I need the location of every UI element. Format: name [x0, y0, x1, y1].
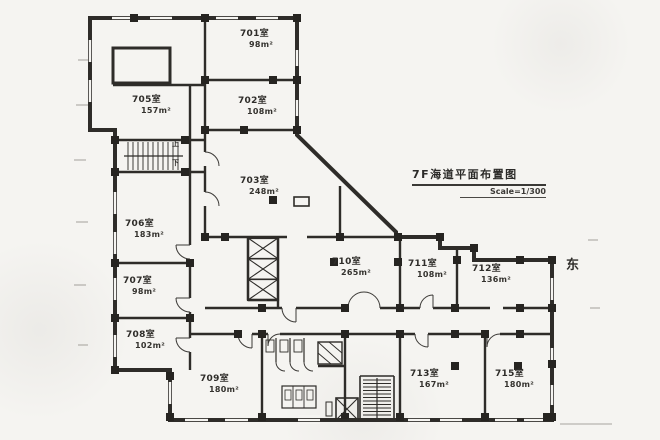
room-label-702: 702室108m²	[238, 96, 277, 117]
restroom-fixtures	[266, 338, 342, 408]
room-number: 713室	[410, 369, 439, 379]
room-label-715: 715室180m²	[495, 369, 534, 390]
room-label-712: 712室136m²	[472, 264, 511, 285]
drawing-scale: Scale=1/300	[460, 186, 546, 198]
stair-up-label: 上	[172, 141, 179, 148]
room-area: 157m²	[141, 106, 171, 116]
room-area: 167m²	[419, 380, 449, 390]
room-number: 709室	[200, 374, 229, 384]
scanned-floor-plan-sheet: 701室98m² 702室108m² 703室248m² 705室157m² 7…	[0, 0, 660, 440]
room-area: 108m²	[417, 270, 447, 280]
room-number: 702室	[238, 96, 267, 106]
room-label-713: 713室167m²	[410, 369, 449, 390]
room-label-710: 710室265m²	[332, 257, 371, 278]
room-label-711: 711室108m²	[408, 259, 447, 280]
room-area: 136m²	[481, 275, 511, 285]
room-number: 706室	[125, 219, 154, 229]
room-number: 711室	[408, 259, 437, 269]
elevator-bank	[248, 238, 278, 300]
room-number: 703室	[240, 176, 269, 186]
room-label-709: 709室180m²	[200, 374, 239, 395]
drawing-title: 7F海道平面布置图	[412, 166, 546, 186]
structural-columns	[111, 14, 556, 421]
room-number: 701室	[240, 29, 269, 39]
floor-plan-drawing	[0, 0, 660, 440]
room-area: 180m²	[504, 380, 534, 390]
room-label-708: 708室102m²	[126, 330, 165, 351]
room-number: 710室	[332, 257, 361, 267]
room-label-705: 705室157m²	[132, 95, 171, 116]
room-label-703: 703室248m²	[240, 176, 279, 197]
room-area: 183m²	[134, 230, 164, 240]
room-area: 102m²	[135, 341, 165, 351]
title-block: 7F海道平面布置图 Scale=1/300	[412, 166, 546, 198]
room-area: 248m²	[249, 187, 279, 197]
room-area: 98m²	[249, 40, 273, 50]
room-number: 708室	[126, 330, 155, 340]
staircase-lower	[360, 376, 394, 420]
room-number: 715室	[495, 369, 524, 379]
room-area: 98m²	[132, 287, 156, 297]
room-number: 707室	[123, 276, 152, 286]
room-area: 180m²	[209, 385, 239, 395]
room-label-701: 701室98m²	[240, 29, 273, 50]
room-number: 712室	[472, 264, 501, 274]
interior-walls	[113, 18, 552, 420]
room-label-707: 707室98m²	[123, 276, 156, 297]
stair-down-label: 下	[172, 160, 179, 167]
room-area: 108m²	[247, 107, 277, 117]
east-marker: 东	[566, 254, 579, 273]
room-number: 705室	[132, 95, 161, 105]
room-area: 265m²	[341, 268, 371, 278]
room-label-706: 706室183m²	[125, 219, 164, 240]
